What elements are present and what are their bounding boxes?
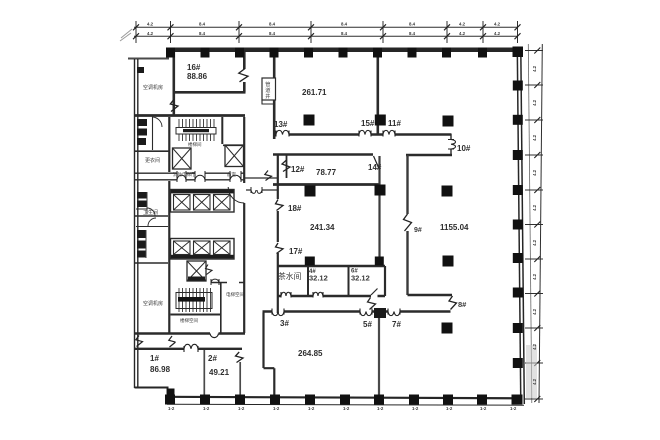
svg-text:8#: 8# [458,300,467,309]
svg-text:茶水间: 茶水间 [278,271,302,281]
svg-text:1-2: 1-2 [480,406,487,411]
svg-text:32.12: 32.12 [351,274,370,283]
svg-text:1-2: 1-2 [377,406,384,411]
svg-text:1-2: 1-2 [343,406,350,411]
svg-text:3#: 3# [280,319,289,328]
svg-text:13#: 13# [274,120,288,129]
svg-text:前室: 前室 [227,171,236,178]
svg-text:4.2: 4.2 [532,169,537,176]
svg-text:14#: 14# [368,163,382,172]
svg-text:4.2: 4.2 [494,22,501,27]
svg-text:井: 井 [265,92,270,100]
svg-text:更衣间: 更衣间 [145,157,160,164]
svg-text:8.4: 8.4 [199,31,206,36]
svg-text:4.2: 4.2 [459,22,466,27]
svg-text:4.2: 4.2 [532,134,537,141]
svg-text:15#: 15# [361,119,375,128]
svg-text:49.21: 49.21 [209,368,230,377]
svg-text:78.77: 78.77 [316,168,337,177]
svg-text:264.85: 264.85 [298,349,323,358]
svg-text:2#: 2# [208,354,217,363]
svg-text:1-2: 1-2 [446,406,453,411]
svg-text:1-2: 1-2 [168,406,175,411]
svg-text:8.4: 8.4 [409,31,416,36]
svg-text:1155.04: 1155.04 [440,223,469,232]
svg-text:1-2: 1-2 [203,406,210,411]
svg-text:楼梯空间: 楼梯空间 [180,317,198,324]
svg-text:8.4: 8.4 [341,22,348,27]
svg-text:卫生间: 卫生间 [143,209,158,216]
svg-text:261.71: 261.71 [302,88,327,97]
svg-text:16#: 16# [187,63,201,72]
svg-text:7#: 7# [392,320,401,329]
svg-text:4.2: 4.2 [532,204,537,211]
svg-text:空调机房: 空调机房 [143,84,163,91]
svg-text:1#: 1# [150,354,159,363]
svg-text:5#: 5# [363,320,372,329]
svg-text:空调机房: 空调机房 [143,300,163,307]
svg-text:8.4: 8.4 [269,22,276,27]
svg-text:4.2: 4.2 [532,378,537,385]
svg-text:4.2: 4.2 [532,239,537,246]
svg-text:12#: 12# [291,165,305,174]
svg-text:8.4: 8.4 [199,22,206,27]
svg-text:32.12: 32.12 [309,274,328,283]
svg-text:道: 道 [265,86,270,94]
svg-text:86.98: 86.98 [150,365,171,374]
svg-text:4.2: 4.2 [147,31,154,36]
svg-text:10#: 10# [457,144,471,153]
svg-text:4.2: 4.2 [532,99,537,106]
svg-text:楼梯间: 楼梯间 [188,141,202,148]
svg-text:4.2: 4.2 [532,65,537,72]
svg-text:11#: 11# [388,119,401,128]
svg-text:4.2: 4.2 [494,31,501,36]
svg-text:17#: 17# [289,247,303,256]
svg-text:4.2: 4.2 [532,273,537,280]
svg-text:管: 管 [265,80,270,88]
svg-text:1-2: 1-2 [308,406,315,411]
svg-text:消防电梯厅: 消防电梯厅 [173,171,196,178]
svg-text:1-2: 1-2 [273,406,280,411]
svg-text:电梯空间: 电梯空间 [226,291,244,298]
svg-text:1-2: 1-2 [510,406,517,411]
svg-text:8.4: 8.4 [409,22,416,27]
svg-text:1-2: 1-2 [412,406,419,411]
svg-text:241.34: 241.34 [310,223,335,232]
svg-text:8.4: 8.4 [341,31,348,36]
svg-text:4.2: 4.2 [532,308,537,315]
svg-text:88.86: 88.86 [187,72,208,81]
svg-text:4.2: 4.2 [147,22,154,27]
svg-text:18#: 18# [288,204,302,213]
svg-text:4.2: 4.2 [532,343,537,350]
svg-text:8.4: 8.4 [269,31,276,36]
svg-text:1-2: 1-2 [238,406,245,411]
svg-text:9#: 9# [414,227,422,234]
svg-text:4.2: 4.2 [459,31,466,36]
